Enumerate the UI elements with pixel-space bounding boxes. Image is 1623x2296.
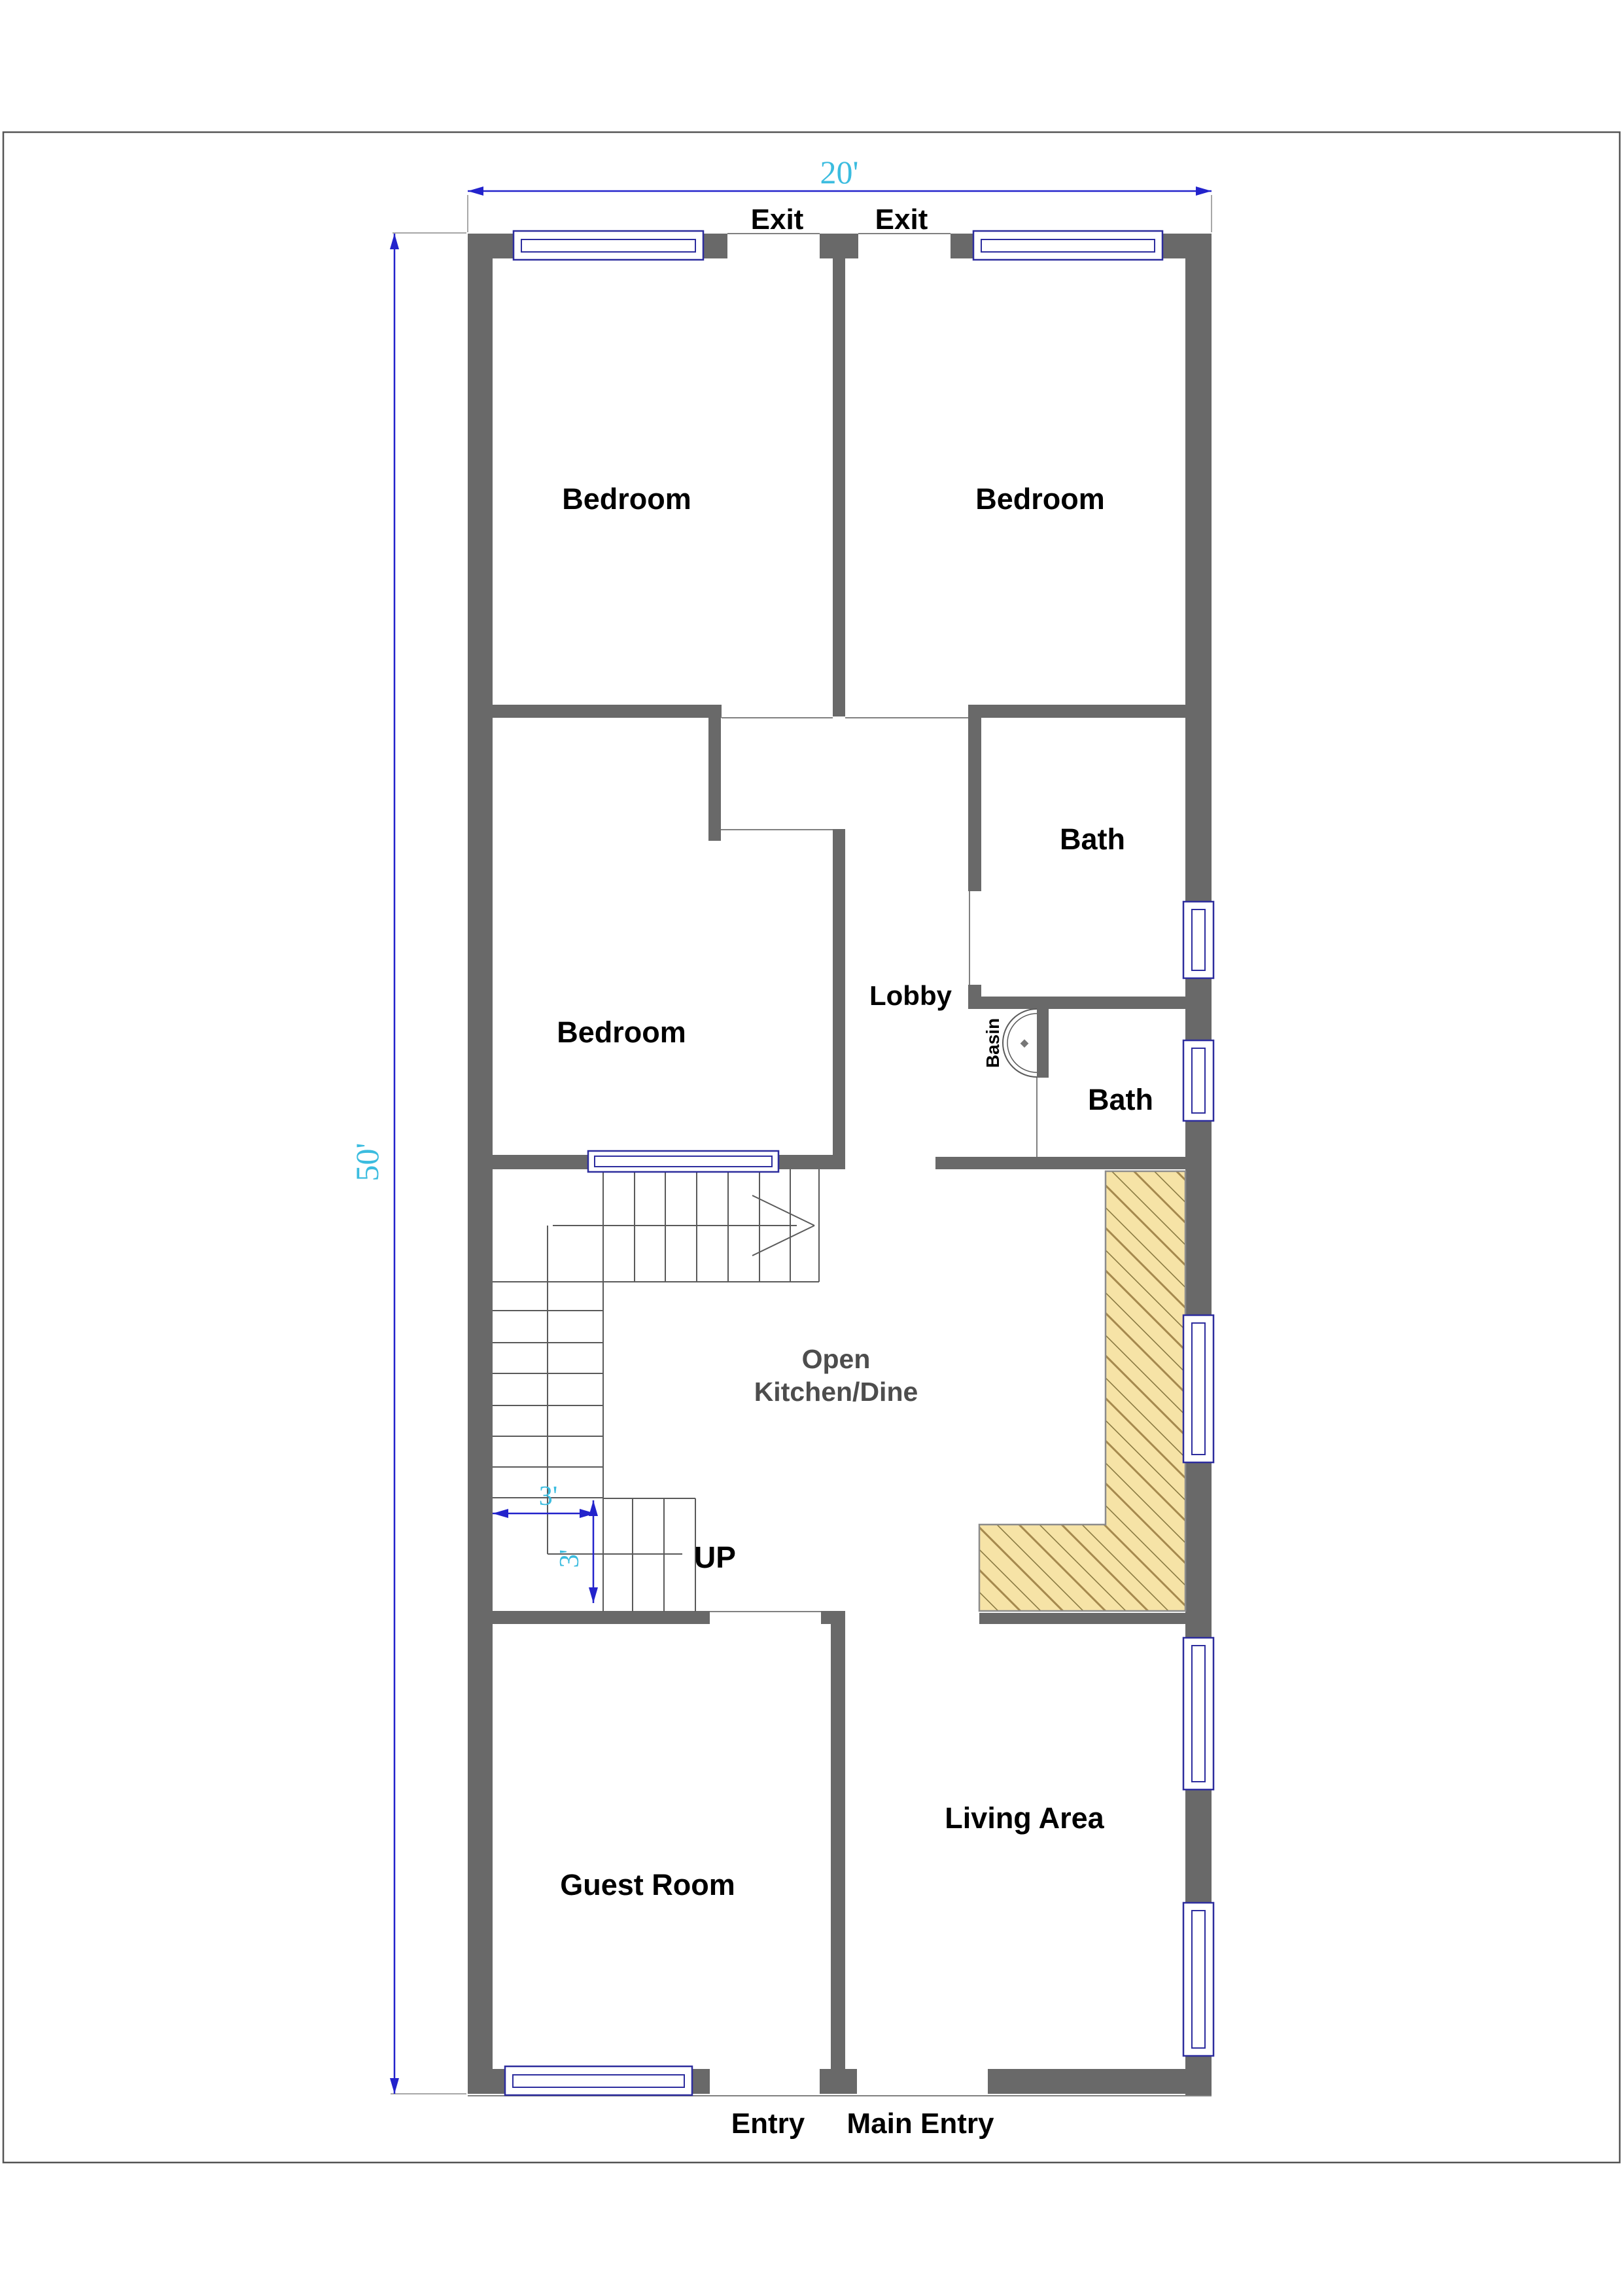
wall-bath1-bottom [968, 997, 1185, 1009]
window-bath1 [1183, 902, 1213, 978]
floor-plan-svg: 20' 50' 3' 3' Exit Exit Bedroom Bedroom … [0, 0, 1623, 2296]
label-bedroom-middle: Bedroom [557, 1016, 686, 1049]
kitchen-counter [979, 1171, 1185, 1611]
window-bedroomTL [514, 231, 703, 260]
window-guest [505, 2066, 692, 2095]
sheet-frame [3, 132, 1620, 2163]
label-exit-right: Exit [875, 203, 928, 236]
wall-bath1-left-upper [968, 718, 981, 891]
label-main-entry: Main Entry [847, 2108, 994, 2140]
dimension-width: 20' [468, 154, 1212, 232]
wall-bath1-top [968, 705, 1185, 718]
drawing-sheet: 20' 50' 3' 3' Exit Exit Bedroom Bedroom … [0, 0, 1623, 2296]
window-bath2 [1183, 1040, 1213, 1121]
wall-basin-stub [1037, 1009, 1049, 1078]
wall-living-top [979, 1613, 1185, 1624]
wall-outer-right [1185, 234, 1212, 2096]
window-bedroomMid [588, 1151, 778, 1172]
dimension-stair-depth: 3' [555, 1500, 598, 1603]
wall-bottom-seg [468, 2069, 505, 2094]
label-kitchen-line1: Open [802, 1344, 871, 1374]
window-living-1 [1183, 1638, 1213, 1790]
dim-stair-depth-label: 3' [555, 1549, 585, 1568]
wall-bedroomTL-bottom [468, 705, 722, 718]
label-bedroom-top-left: Bedroom [562, 482, 691, 516]
wall-bedroomMid-bottom-right [778, 1155, 845, 1169]
stair-direction-arrow [553, 1195, 814, 1256]
label-up: UP [694, 1540, 736, 1574]
wall-bottom-corridor-block [820, 2069, 857, 2094]
basin [1003, 1009, 1037, 1077]
dimension-stair-width: 3' [493, 1481, 595, 1518]
wall-bottom-seg [692, 2069, 710, 2094]
dim-height-label: 50' [349, 1142, 385, 1181]
wall-top-seg [468, 234, 514, 258]
dim-width-label: 20' [820, 154, 858, 190]
dim-stair-width-label: 3' [539, 1481, 558, 1511]
label-living-area: Living Area [945, 1801, 1104, 1835]
label-exit-left: Exit [751, 203, 804, 236]
label-lobby: Lobby [869, 980, 952, 1011]
wall-central-upper [833, 257, 845, 716]
dimension-height: 50' [349, 233, 466, 2094]
window-bedroomTR [973, 231, 1162, 260]
wall-guest-top [468, 1611, 710, 1624]
label-guest-room: Guest Room [560, 1868, 735, 1901]
window-living-2 [1183, 1903, 1213, 2056]
wall-corridor [831, 1611, 845, 2069]
label-bedroom-top-right: Bedroom [975, 482, 1105, 516]
wall-stub-bedroom-mid [708, 718, 721, 841]
wall-top-seg [703, 234, 727, 258]
wall-bath2-bottom [935, 1157, 1185, 1169]
label-bath-upper: Bath [1060, 822, 1125, 856]
window-kitchen [1183, 1315, 1213, 1462]
wall-top-center-block [820, 234, 858, 258]
wall-bedroomMid-bottom-left [468, 1155, 588, 1169]
wall-top-seg [951, 234, 973, 258]
label-bath-lower: Bath [1088, 1083, 1153, 1116]
wall-bath1-left-lower [968, 985, 981, 997]
counter-hatch [979, 1171, 1185, 1611]
label-kitchen-line2: Kitchen/Dine [754, 1377, 918, 1407]
label-entry: Entry [731, 2108, 805, 2140]
wall-central-middle [833, 829, 845, 1169]
label-basin: Basin [983, 1018, 1003, 1068]
wall-bottom-living [988, 2069, 1212, 2094]
